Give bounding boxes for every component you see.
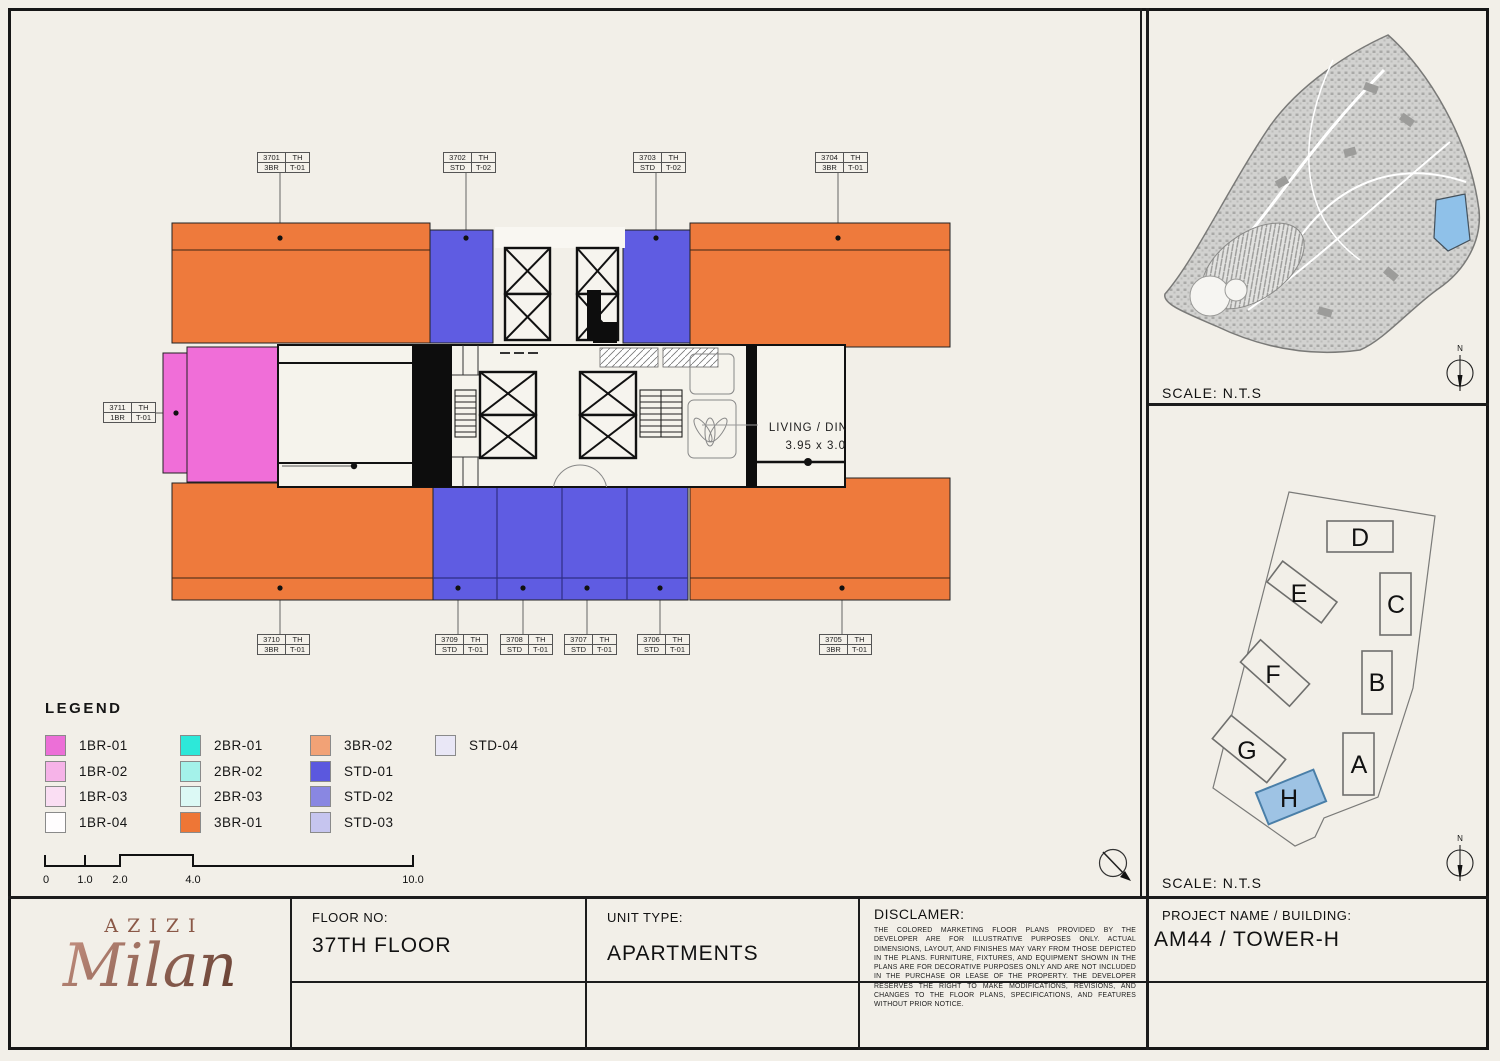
floor-plan-drawing: LIVING / DIN 3.95 x 3.0 xyxy=(90,140,960,670)
tower-b-label: B xyxy=(1369,669,1386,697)
legend-item: 1BR-02 xyxy=(45,759,180,785)
unit-3701-block xyxy=(172,223,430,343)
living-room-dims: 3.95 x 3.0 xyxy=(785,440,846,452)
drawing-reference-symbol xyxy=(1092,843,1142,893)
project-name-label: PROJECT NAME / BUILDING: xyxy=(1162,908,1351,923)
unit-3710-block xyxy=(172,483,433,600)
std-units-row-block xyxy=(433,487,688,600)
unit-type-value: APARTMENTS xyxy=(607,942,759,966)
legend-item: STD-01 xyxy=(310,759,435,785)
unit-label-3708: 3708TH STDT-01 xyxy=(500,634,553,655)
legend-item: STD-02 xyxy=(310,784,435,810)
titleblock-div-1 xyxy=(290,896,292,1050)
legend-title: LEGEND xyxy=(45,700,555,717)
unit-3705-block xyxy=(690,478,950,600)
legend: LEGEND 1BR-01 1BR-02 1BR-03 1BR-04 2BR-0… xyxy=(45,700,555,835)
legend-item: 1BR-01 xyxy=(45,733,180,759)
core-wall xyxy=(412,345,452,487)
unit-3703-block xyxy=(623,230,690,343)
color-swatch xyxy=(310,812,331,833)
site-map-highlighted-parcel xyxy=(1434,194,1470,251)
tower-key-plan-panel: A B C D E F G H N SCALE: N.T.S xyxy=(1148,406,1492,897)
project-name-cell: PROJECT NAME / BUILDING: AM44 / TOWER-H xyxy=(1162,908,1351,952)
color-swatch xyxy=(180,786,201,807)
tower-site-outline xyxy=(1213,492,1435,846)
legend-item: STD-04 xyxy=(435,733,555,759)
main-right-divider xyxy=(1140,8,1142,897)
core-lobby xyxy=(495,227,625,248)
project-name-value: AM44 / TOWER-H xyxy=(1154,928,1351,952)
svg-text:N: N xyxy=(1457,834,1463,843)
unit-type-label: UNIT TYPE: xyxy=(607,910,759,925)
site-map-clubhouse xyxy=(1190,276,1230,316)
legend-item: 2BR-03 xyxy=(180,784,310,810)
titleblock-div-2 xyxy=(585,896,587,1050)
legend-item: 3BR-02 xyxy=(310,733,435,759)
color-swatch xyxy=(435,735,456,756)
tower-c-label: C xyxy=(1387,591,1405,619)
unit-label-3710: 3710TH 3BRT-01 xyxy=(257,634,310,655)
svg-text:N: N xyxy=(1457,344,1463,353)
color-swatch xyxy=(45,735,66,756)
unit-label-3711: 3711TH 1BRT-01 xyxy=(103,402,156,423)
legend-item: STD-03 xyxy=(310,810,435,836)
tower-h-label: H xyxy=(1280,785,1298,813)
scale-tick-2: 2.0 xyxy=(112,874,127,886)
unit-type-cell: UNIT TYPE: APARTMENTS xyxy=(607,910,759,966)
legend-item: 2BR-01 xyxy=(180,733,310,759)
color-swatch xyxy=(45,761,66,782)
unit-label-3701: 3701TH 3BRT-01 xyxy=(257,152,310,173)
color-swatch xyxy=(180,761,201,782)
site-map-scale-label: SCALE: N.T.S xyxy=(1162,385,1262,401)
scale-bar: 0 1.0 2.0 4.0 10.0 xyxy=(40,852,430,892)
color-swatch xyxy=(180,735,201,756)
unit-label-3707: 3707TH STDT-01 xyxy=(564,634,617,655)
floor-no-value: 37TH FLOOR xyxy=(312,934,452,958)
north-compass-icon: N xyxy=(1447,834,1473,881)
scale-tick-0: 0 xyxy=(43,874,49,886)
tower-d-label: D xyxy=(1351,524,1369,552)
unit-3711-block xyxy=(187,347,278,482)
unit-3702-block xyxy=(430,230,493,343)
tower-f-label: F xyxy=(1265,661,1280,689)
legend-item: 1BR-04 xyxy=(45,810,180,836)
brand-logo: AZIZI Milan xyxy=(30,915,270,1001)
scale-tick-1: 1.0 xyxy=(77,874,92,886)
living-room-label: LIVING / DIN xyxy=(769,422,848,434)
floor-no-cell: FLOOR NO: 37TH FLOOR xyxy=(312,910,452,958)
color-swatch xyxy=(310,735,331,756)
drawing-sheet: LIVING / DIN 3.95 x 3.0 3701TH 3BRT-01 3… xyxy=(0,0,1500,1061)
scale-tick-4: 10.0 xyxy=(402,874,423,886)
color-swatch xyxy=(45,812,66,833)
disclaimer-label: DISCLAMER: xyxy=(874,906,1136,922)
legend-item: 1BR-03 xyxy=(45,784,180,810)
tower-e-label: E xyxy=(1291,580,1308,608)
scale-tick-3: 4.0 xyxy=(185,874,200,886)
tower-a-label: A xyxy=(1351,751,1368,779)
unit-3704-block xyxy=(690,223,950,347)
disclaimer-cell: DISCLAMER: THE COLORED MARKETING FLOOR P… xyxy=(874,906,1136,1010)
site-map-panel: N SCALE: N.T.S xyxy=(1148,8,1492,404)
brand-script-logo: Milan xyxy=(30,931,270,1001)
unit-label-3705: 3705TH 3BRT-01 xyxy=(819,634,872,655)
color-swatch xyxy=(310,786,331,807)
titleblock-div-3 xyxy=(858,896,860,1050)
color-swatch xyxy=(310,761,331,782)
legend-item: 3BR-01 xyxy=(180,810,310,836)
unit-label-3704: 3704TH 3BRT-01 xyxy=(815,152,868,173)
tower-plan-scale-label: SCALE: N.T.S xyxy=(1162,875,1262,891)
middle-band xyxy=(278,345,845,487)
unit-label-3703: 3703TH STDT-02 xyxy=(633,152,686,173)
floor-no-label: FLOOR NO: xyxy=(312,910,452,925)
color-swatch xyxy=(45,786,66,807)
north-compass-icon: N xyxy=(1447,344,1473,391)
color-swatch xyxy=(180,812,201,833)
unit-label-3702: 3702TH STDT-02 xyxy=(443,152,496,173)
disclaimer-text: THE COLORED MARKETING FLOOR PLANS PROVID… xyxy=(874,926,1136,1010)
unit-label-3706: 3706TH STDT-01 xyxy=(637,634,690,655)
legend-item: 2BR-02 xyxy=(180,759,310,785)
tower-g-label: G xyxy=(1237,737,1256,765)
unit-label-3709: 3709TH STDT-01 xyxy=(435,634,488,655)
